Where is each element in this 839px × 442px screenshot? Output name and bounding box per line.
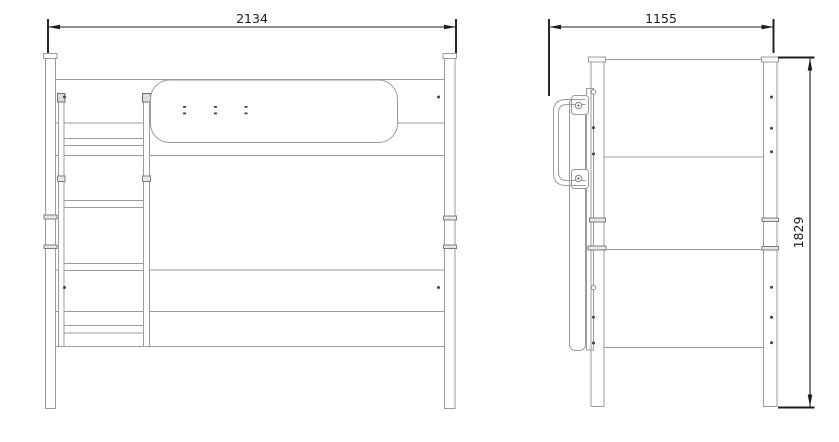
side-depth-label: 1155	[645, 11, 677, 26]
side-left-post	[588, 57, 606, 407]
post-cap	[762, 57, 779, 62]
guard-rail-panel	[151, 80, 398, 143]
post-connector	[444, 216, 457, 220]
post-connector	[44, 215, 57, 219]
ladder-stile-joint	[143, 176, 151, 182]
side-depth-dimension: 1155	[549, 11, 774, 96]
dimension-arrow-left	[549, 25, 561, 30]
dimension-arrow-right	[444, 25, 456, 30]
height-label: 1829	[791, 217, 806, 249]
fastener-marks-side	[591, 90, 773, 345]
ladder-rung	[64, 201, 144, 208]
post-connector	[588, 246, 606, 250]
post-cap	[589, 57, 606, 62]
post-connector	[762, 247, 779, 251]
post-cap	[443, 54, 457, 59]
ladder-stile-cap	[143, 94, 151, 103]
front-view: 2134	[44, 11, 457, 409]
ladder-stile-joint	[58, 176, 66, 182]
drawing-canvas: 2134	[0, 0, 839, 442]
ladder-left-stile	[59, 94, 65, 347]
panel-rails-side	[604, 60, 764, 348]
front-left-post	[44, 54, 58, 409]
ladder-rung	[64, 326, 144, 334]
dimension-arrow-up	[808, 59, 813, 71]
post-connector	[44, 245, 57, 249]
ladder-rung	[64, 264, 144, 271]
side-right-post	[762, 57, 779, 407]
side-view: 1155 1829	[549, 11, 815, 408]
front-width-dimension: 2134	[48, 11, 456, 53]
ladder-rung	[64, 139, 144, 146]
post-connector	[444, 245, 457, 249]
post-connector	[762, 218, 779, 222]
height-dimension: 1829	[778, 58, 815, 408]
dimension-arrow-right	[762, 25, 774, 30]
ladder-right-stile	[144, 94, 150, 347]
dimension-arrow-down	[808, 395, 813, 407]
technical-drawing: 2134	[0, 0, 839, 442]
post-cap	[44, 54, 58, 59]
front-width-label: 2134	[236, 11, 268, 26]
ladder	[58, 94, 151, 347]
ladder-plate-profile	[570, 97, 586, 351]
front-right-post	[443, 54, 457, 409]
dimension-arrow-left	[48, 25, 60, 30]
post-connector	[590, 218, 606, 222]
